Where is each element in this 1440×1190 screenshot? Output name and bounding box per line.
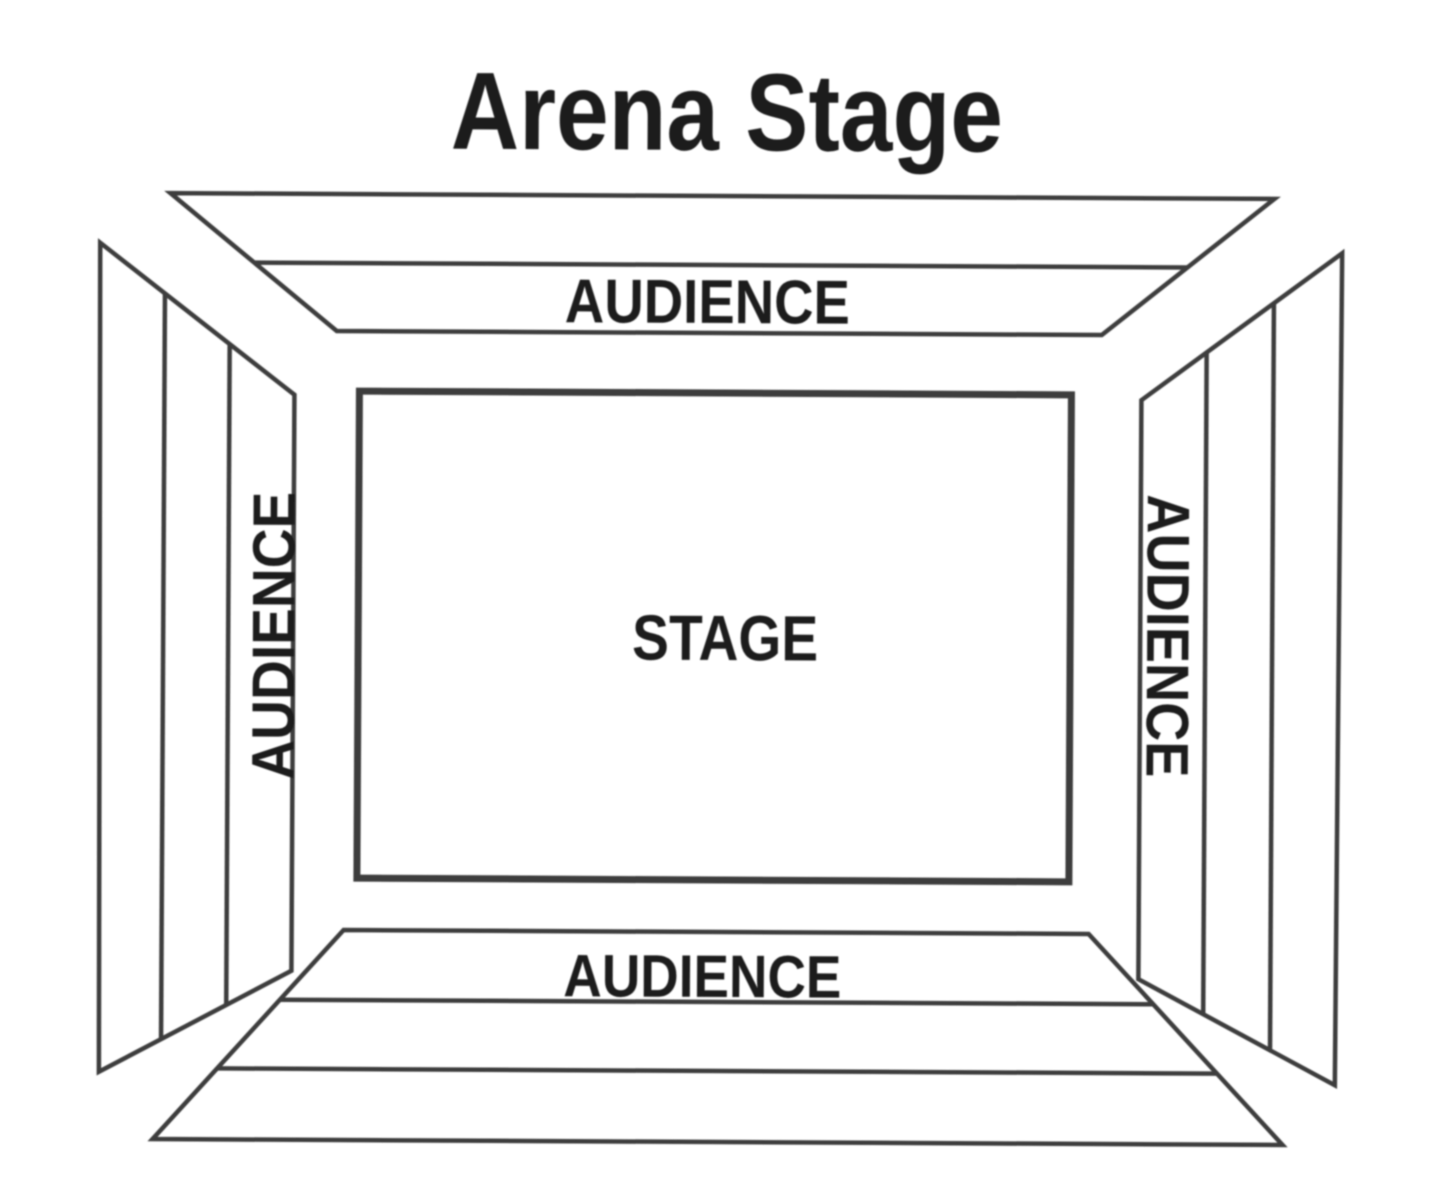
audience-bank-top-row-divider	[255, 263, 1187, 268]
title-group: Arena Stage	[451, 50, 1004, 176]
audience-label-bottom: AUDIENCE	[563, 942, 841, 1010]
stage-label: STAGE	[632, 602, 818, 675]
audience-bank-right-row-divider-1	[1270, 303, 1274, 1049]
scanned-diagram-page: Arena Stage	[0, 0, 1440, 1190]
arena-stage-diagram: Arena Stage	[0, 0, 1440, 1190]
audience-bank-left-row-divider-1	[161, 293, 165, 1038]
audience-bank-left-row-divider-2	[226, 344, 229, 1004]
audience-label-top: AUDIENCE	[565, 267, 850, 337]
audience-label-right: AUDIENCE	[1133, 494, 1201, 777]
audience-bank-bottom-row-divider-2	[217, 1068, 1217, 1073]
diagram-labels: AUDIENCE STAGE AUDIENCE AUDIENCE AUDIENC…	[238, 266, 1203, 1013]
audience-label-left: AUDIENCE	[239, 491, 308, 779]
page-title: Arena Stage	[451, 50, 1004, 176]
audience-bank-right-row-divider-2	[1203, 353, 1206, 1014]
